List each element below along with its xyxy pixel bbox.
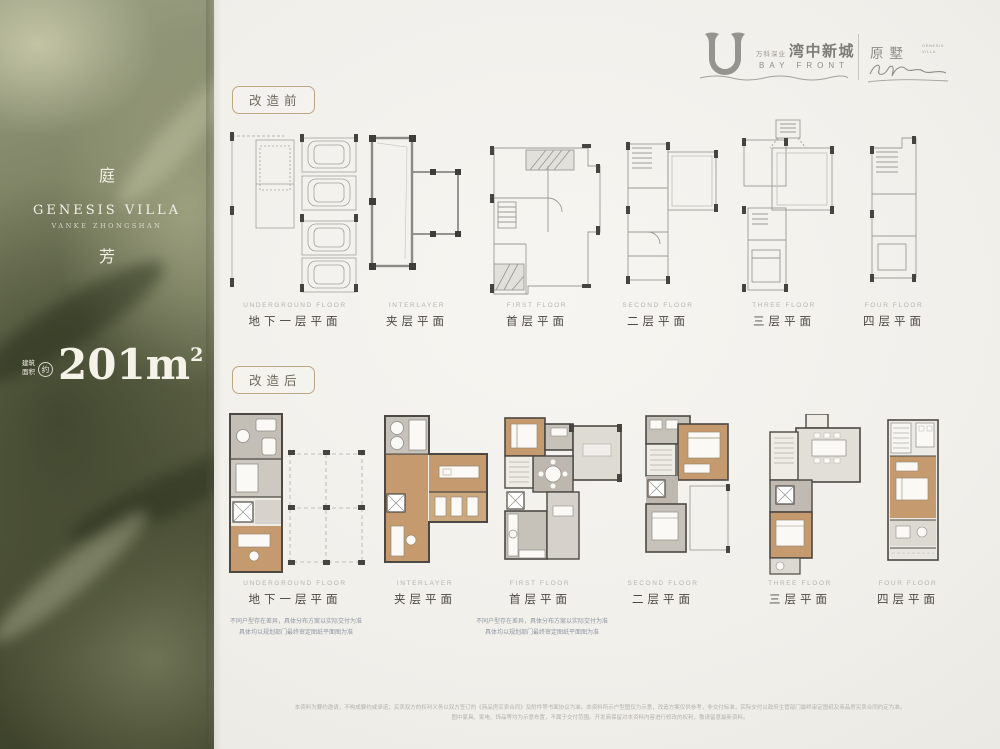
- plan-after-fourth-floor: [884, 416, 944, 564]
- sub-brand-small: GENESIS VILLA: [922, 43, 944, 55]
- badge-after-renovation: 改造后: [232, 366, 315, 394]
- area-number: 201m: [58, 340, 190, 389]
- villa-title-char-top: 庭: [0, 162, 214, 186]
- floor-label-en: FOUR FLOOR: [824, 302, 964, 309]
- brand-lockup: 万科深业湾中新城 BAY FRONT 原墅 GENESIS VILLA: [698, 28, 952, 90]
- plan-before-interlayer: [366, 132, 464, 274]
- plan-before-fourth-floor: [864, 132, 926, 284]
- floor-label-en: INTERLAYER: [347, 302, 487, 309]
- floor-label-cn: 夹层平面: [347, 313, 487, 329]
- badge-before-renovation: 改造前: [232, 86, 315, 114]
- floor-label-cn: 二层平面: [588, 313, 728, 329]
- note-line2: 具体均以规划部门最终审定图纸平面图为准: [432, 628, 652, 639]
- floor-label-en: UNDERGROUND FLOOR: [225, 580, 365, 587]
- area-label-line2: 面积: [22, 368, 35, 377]
- brochure-page: 庭 GENESIS VILLA VANKE ZHONGSHAN 芳 建筑 面积 …: [0, 0, 1000, 749]
- floor-label: FIRST FLOOR 首层平面: [470, 580, 610, 607]
- floor-label-cn: 四层平面: [838, 591, 978, 607]
- approx-circle: 约: [38, 362, 53, 377]
- villa-subtitle-small: VANKE ZHONGSHAN: [0, 222, 214, 230]
- floor-label: UNDERGROUND FLOOR 地下一层平面: [225, 302, 365, 329]
- floor-label-en: FOUR FLOOR: [838, 580, 978, 587]
- leaf-highlight: [107, 59, 214, 216]
- legal-fine-print: 本资料为要约邀请，不构成要约或承诺；买卖双方的权利义务以双方签订的《商品房买卖合…: [228, 704, 972, 723]
- plan-after-second-floor: [638, 414, 732, 564]
- plan-before-third-floor: [740, 118, 838, 296]
- plan-before-second-floor: [618, 136, 724, 288]
- floor-label: SECOND FLOOR 二层平面: [588, 302, 728, 329]
- area-value: 201m2: [58, 344, 203, 386]
- plan-after-underground: [228, 410, 368, 576]
- floor-label: FOUR FLOOR 四层平面: [824, 302, 964, 329]
- floor-label: FIRST FLOOR 首层平面: [467, 302, 607, 329]
- fine-print-line2: 图中家具、家电、饰品等均为示意布置，不属于交付范围。开发商保留对本资料内容进行修…: [228, 714, 972, 724]
- brand-cn-text: 万科深业湾中新城: [756, 40, 855, 61]
- note-line1: 不同户型存在差异，具体分布方案以实际交付为准: [432, 617, 652, 628]
- floor-label: SECOND FLOOR 二层平面: [593, 580, 733, 607]
- floor-label-en: UNDERGROUND FLOOR: [225, 302, 365, 309]
- plan-before-underground: [226, 126, 364, 294]
- note-line2: 具体均以规划部门最终审定图纸平面图为准: [186, 628, 406, 639]
- leaf-shadow: [62, 423, 214, 557]
- villa-subtitle-en: GENESIS VILLA: [0, 203, 214, 218]
- plan-before-first-floor: [486, 134, 608, 302]
- plan-after-interlayer: [383, 414, 489, 564]
- floor-label-cn: 二层平面: [593, 591, 733, 607]
- leaf-highlight: [0, 500, 158, 655]
- brand-cn-large: 湾中新城: [789, 42, 855, 60]
- fine-print-line1: 本资料为要约邀请，不构成要约或承诺；买卖双方的权利义务以双方签订的《商品房买卖合…: [228, 704, 972, 714]
- note-line1: 不同户型存在差异，具体分布方案以实际交付为准: [186, 617, 406, 628]
- floor-label-en: FIRST FLOOR: [470, 580, 610, 587]
- floor-label: INTERLAYER 夹层平面: [347, 302, 487, 329]
- floor-label-en: FIRST FLOOR: [467, 302, 607, 309]
- signature-icon: [866, 58, 950, 86]
- floor-label: FOUR FLOOR 四层平面: [838, 580, 978, 607]
- floor-label-cn: 四层平面: [824, 313, 964, 329]
- plan-after-first-floor: [503, 414, 625, 564]
- disclaimer-note-left: 不同户型存在差异，具体分布方案以实际交付为准 具体均以规划部门最终审定图纸平面图…: [186, 617, 406, 639]
- floor-label-en: SECOND FLOOR: [588, 302, 728, 309]
- floor-label-cn: 首层平面: [470, 591, 610, 607]
- area-superscript: 2: [190, 344, 203, 366]
- area-block: 建筑 面积 约 201m2: [22, 344, 203, 386]
- villa-title-char-bottom: 芳: [0, 243, 214, 267]
- floor-label-en: SECOND FLOOR: [593, 580, 733, 587]
- wave-line-icon: [698, 72, 850, 84]
- floor-label-cn: 地下一层平面: [225, 313, 365, 329]
- sub-brand-small-line2: VILLA: [922, 49, 944, 55]
- floor-label-cn: 首层平面: [467, 313, 607, 329]
- brand-cn-small: 万科深业: [756, 51, 786, 58]
- floor-label-cn: 地下一层平面: [225, 591, 365, 607]
- brand-en-text: BAY FRONT: [759, 61, 849, 70]
- area-label-line1: 建筑: [22, 359, 35, 368]
- plan-after-third-floor: [766, 414, 866, 576]
- area-label: 建筑 面积: [22, 359, 35, 377]
- disclaimer-note-right: 不同户型存在差异，具体分布方案以实际交付为准 具体均以规划部门最终审定图纸平面图…: [432, 617, 652, 639]
- floor-label: UNDERGROUND FLOOR 地下一层平面: [225, 580, 365, 607]
- logo-divider: [858, 34, 859, 80]
